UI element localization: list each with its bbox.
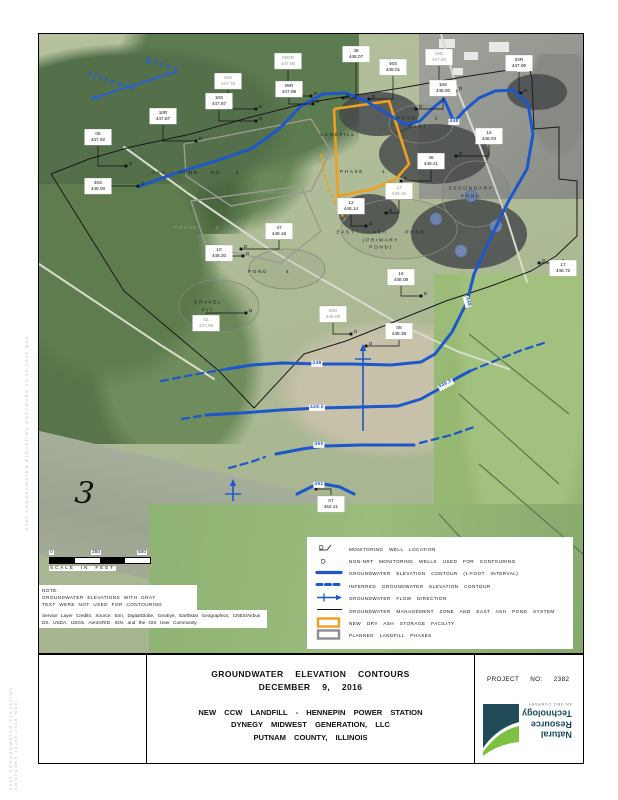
area-label: EAST ASH POND (PRIMARY POND) <box>336 229 425 252</box>
well-elevation: 448.14 <box>338 206 365 212</box>
well-elevation: 447.87 <box>206 101 233 107</box>
well-elevation: 448.20 <box>206 253 233 259</box>
well-label-12: 12448.14 <box>338 198 365 214</box>
legend-item: PLANNED LANDFILL PHASES <box>315 630 565 642</box>
area-label: LANDFILL <box>320 132 355 140</box>
scale-caption: SCALE IN FEET <box>49 566 116 571</box>
area-label: SECONDARY POND <box>449 185 494 200</box>
well-label-15: 15448.03 <box>476 128 503 144</box>
map-sheet: 2382 GROUNDWATER ELEVATION CONTOURS 12-0… <box>0 0 618 800</box>
note-text: NOTE: GROUNDWATER ELEVATIONS WITH GRAY T… <box>39 585 197 610</box>
map-title: GROUNDWATER ELEVATION CONTOURS <box>147 668 474 681</box>
well-elevation: 448.16 <box>386 191 413 197</box>
nrt-logo-word-natural: Natural <box>522 729 572 740</box>
well-label-46S: 46S448.01 <box>380 59 407 75</box>
area-label: PHASE 3 <box>174 225 220 233</box>
scale-ticks: 0 250 500 <box>49 550 169 557</box>
legend-item: DMONITORING WELL LOCATION <box>315 543 565 555</box>
well-label-06: 06447.92 <box>85 129 112 145</box>
contour-elevation-label: 448 <box>311 361 322 367</box>
area-label: POND 4 <box>248 269 290 277</box>
well-elevation: 448.21 <box>418 161 445 167</box>
well-label-45S: 45S448.00 <box>85 178 112 194</box>
well-label-13: 13448.16 <box>386 183 413 199</box>
legend-label: INFERRED GROUNDWATER ELEVATION CONTOUR <box>349 584 491 589</box>
company-name: DYNEGY MIDWEST GENERATION, LLC <box>147 719 474 731</box>
well-label-46: 46448.21 <box>418 153 445 169</box>
legend-item: GROUNDWATER FLOW DIRECTION <box>315 593 565 605</box>
well-elevation: 448.08 <box>388 277 415 283</box>
well-label-04R: 04R447.90 <box>506 55 533 71</box>
well-elevation: 448.03 <box>476 136 503 142</box>
well-label-18S: 18S448.00 <box>430 80 457 96</box>
margin-plot-stamp-2: 2382 GROUNDWATER ELEVATION CONTOURS 12-0… <box>8 660 18 790</box>
nrt-logo-word-resource: Resource <box>522 719 572 730</box>
gray-rect-icon <box>315 627 349 645</box>
margin-plot-stamp: 2382 GROUNDWATER ELEVATION CONTOURS 12-0… <box>24 280 29 530</box>
nrt-logo: AN OBG COMPANY Technology Resource Natur… <box>483 702 575 758</box>
nrt-logo-tagline: AN OBG COMPANY <box>522 702 572 706</box>
legend: DMONITORING WELL LOCATIONDNON-NRT MONITO… <box>307 537 573 649</box>
well-elevation: 448.01 <box>380 67 407 73</box>
legend-item: GROUNDWATER ELEVATION CONTOUR (1-FOOT IN… <box>315 568 565 580</box>
well-label-02: 02447.99 <box>193 315 220 331</box>
scale-bar-graphic <box>49 557 151 564</box>
title-block-right-cell: PROJECT NO: 2382 AN OBG COMPANY Technolo… <box>475 654 583 763</box>
well-label-08D: 08D448.09 <box>320 306 347 322</box>
legend-item: GROUNDWATER MANAGEMENT ZONE AND EAST ASH… <box>315 605 565 617</box>
well-label-16D: 16D447.76 <box>215 73 242 89</box>
well-elevation: 447.95 <box>275 61 302 67</box>
well-elevation: 447.99 <box>276 89 303 95</box>
well-elevation: 447.92 <box>85 137 112 143</box>
well-label-10: 10448.20 <box>206 245 233 261</box>
nrt-logo-word-technology: Technology <box>522 708 572 719</box>
county-state: PUTNAM COUNTY, ILLINOIS <box>147 732 474 744</box>
well-elevation: 448.39 <box>386 331 413 337</box>
scale-tick-0: 0 <box>49 550 54 555</box>
map-frame: DDDDDDDDDDDDDDDDDDDDDDDD ASH POND NO. 2L… <box>38 33 584 655</box>
well-elevation: 448.00 <box>85 186 112 192</box>
legend-rows: DMONITORING WELL LOCATIONDNON-NRT MONITO… <box>315 543 565 642</box>
well-elevation: 448.18 <box>266 231 293 237</box>
well-label-17: 17448.72 <box>550 260 577 276</box>
contour-elevation-label: 449.0 <box>309 405 325 411</box>
well-elevation: 447.90 <box>506 63 533 69</box>
well-elevation: 448.72 <box>550 268 577 274</box>
legend-item: DNON-NRT MONITORING WELLS USED FOR CONTO… <box>315 555 565 567</box>
area-label: PHASE 1 <box>340 169 386 177</box>
legend-label: PLANNED LANDFILL PHASES <box>349 633 432 638</box>
river-mile-marker: 3 <box>73 475 96 512</box>
legend-item: INFERRED GROUNDWATER ELEVATION CONTOUR <box>315 580 565 592</box>
well-elevation: 447.76 <box>215 81 242 87</box>
title-block-empty-cell <box>39 654 147 763</box>
scale-tick-250: 250 <box>91 550 101 555</box>
service-layer-credits: Service Layer Credits: Source: Esri, Dig… <box>39 610 267 628</box>
scale-bar: 0 250 500 SCALE IN FEET <box>49 550 169 571</box>
notes-block: NOTE: GROUNDWATER ELEVATIONS WITH GRAY T… <box>39 585 267 628</box>
well-label-07: 07452.21 <box>318 496 345 512</box>
project-number: PROJECT NO: 2382 <box>487 676 569 683</box>
well-elevation: 447.87 <box>150 116 177 122</box>
area-label: GRAVEL PIT <box>194 299 223 314</box>
title-block-center-cell: GROUNDWATER ELEVATION CONTOURS DECEMBER … <box>147 654 475 763</box>
well-label-10R: 10R447.87 <box>150 108 177 124</box>
well-elevation: 448.00 <box>430 88 457 94</box>
site-name: NEW CCW LANDFILL - HENNEPIN POWER STATIO… <box>147 707 474 719</box>
nrt-logo-swoosh-icon <box>483 702 519 756</box>
well-elevation: 452.21 <box>318 504 345 510</box>
area-label: PHASE 2 <box>263 190 309 198</box>
area-label: ASH POND NO. 2 <box>152 170 240 178</box>
contour-elevation-label: 450 <box>313 442 324 448</box>
title-block: GROUNDWATER ELEVATION CONTOURS DECEMBER … <box>38 653 584 764</box>
legend-label: GROUNDWATER ELEVATION CONTOUR (1-FOOT IN… <box>349 571 518 576</box>
map-date: DECEMBER 9, 2016 <box>147 681 474 694</box>
well-elevation: 448.07 <box>343 54 370 60</box>
legend-label: NEW DRY ASH STORAGE FACILITY <box>349 621 455 626</box>
well-label-16: 16448.08 <box>388 269 415 285</box>
scale-tick-500: 500 <box>137 550 147 555</box>
legend-label: GROUNDWATER MANAGEMENT ZONE AND EAST ASH… <box>349 609 555 614</box>
area-label: POND 2 EAST <box>397 115 439 130</box>
contour-elevation-label: 448 <box>448 119 459 125</box>
well-label-08: 08448.39 <box>386 323 413 339</box>
legend-label: NON-NRT MONITORING WELLS USED FOR CONTOU… <box>349 559 516 564</box>
well-elevation: 447.93 <box>426 57 453 63</box>
well-elevation: 448.09 <box>320 314 347 320</box>
well-label-10S: 10S447.87 <box>206 93 233 109</box>
well-elevation: 447.99 <box>193 323 220 329</box>
legend-label: GROUNDWATER FLOW DIRECTION <box>349 596 447 601</box>
well-label-47: 47448.18 <box>266 223 293 239</box>
well-label-19D: 19D447.93 <box>426 49 453 65</box>
well-label-05R: 05R447.99 <box>276 81 303 97</box>
nrt-logo-text: AN OBG COMPANY Technology Resource Natur… <box>522 702 572 758</box>
well-label-05DR: 05DR447.95 <box>275 53 302 69</box>
well-label-48: 48448.07 <box>343 46 370 62</box>
legend-label: MONITORING WELL LOCATION <box>349 547 436 552</box>
contour-elevation-label: 451 <box>313 482 324 488</box>
svg-text:D: D <box>319 545 324 552</box>
legend-item: NEW DRY ASH STORAGE FACILITY <box>315 617 565 629</box>
